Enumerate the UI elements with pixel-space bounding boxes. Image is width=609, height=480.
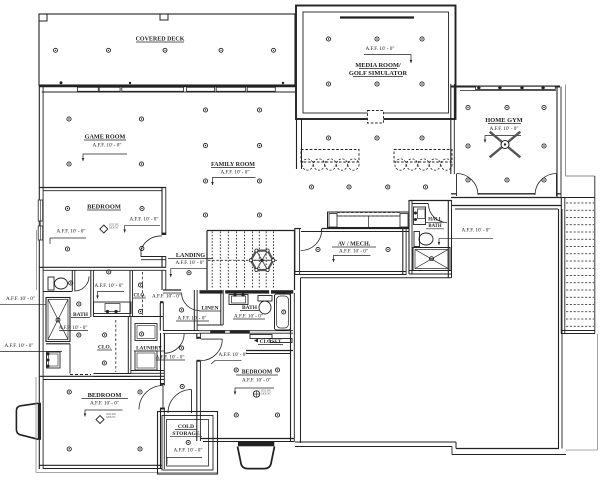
- svg-text:BEDROOM: BEDROOM: [87, 204, 121, 211]
- svg-text:BATH: BATH: [242, 305, 258, 311]
- svg-text:A.F.F. 10' - 0": A.F.F. 10' - 0": [489, 126, 518, 132]
- svg-text:GOLF SIMULATOR: GOLF SIMULATOR: [349, 70, 408, 77]
- svg-text:A.F.F. 10' - 0": A.F.F. 10' - 0": [152, 294, 181, 300]
- svg-text:BATH: BATH: [73, 312, 89, 318]
- svg-text:A.F.F. 10' - 0": A.F.F. 10' - 0": [94, 283, 123, 289]
- svg-text:CLO.: CLO.: [98, 345, 112, 351]
- svg-text:A.F.F. 10' - 0": A.F.F. 10' - 0": [6, 296, 35, 302]
- svg-text:A.F.F. 10' - 0": A.F.F. 10' - 0": [92, 143, 121, 149]
- svg-text:MOUNT: MOUNT: [109, 227, 119, 230]
- svg-text:A.F.F. 10' - 0": A.F.F. 10' - 0": [129, 217, 158, 223]
- svg-text:BEDROOM: BEDROOM: [88, 392, 122, 399]
- svg-text:A.F.F. 10' - 0": A.F.F. 10' - 0": [242, 378, 271, 384]
- svg-text:GAME ROOM: GAME ROOM: [85, 134, 126, 141]
- svg-text:A.F.F. 10' - 0": A.F.F. 10' - 0": [4, 343, 33, 349]
- svg-text:A.F.F. 10' - 0": A.F.F. 10' - 0": [218, 352, 247, 358]
- svg-text:LANDING: LANDING: [176, 252, 205, 259]
- svg-text:LAUNDRY: LAUNDRY: [136, 346, 162, 352]
- svg-text:MOUNT: MOUNT: [261, 393, 271, 396]
- svg-text:A.F.F. 10' - 0": A.F.F. 10' - 0": [461, 228, 490, 234]
- svg-text:A.F.F. 10' - 0": A.F.F. 10' - 0": [177, 316, 206, 322]
- svg-text:MOUNT: MOUNT: [106, 416, 116, 419]
- svg-text:STORAGE: STORAGE: [172, 431, 200, 437]
- svg-text:A.F.F. 10' - 0": A.F.F. 10' - 0": [220, 170, 249, 176]
- svg-text:A.F.F. 10' - 0": A.F.F. 10' - 0": [90, 401, 119, 407]
- svg-text:A.F.F. 10' - 0": A.F.F. 10' - 0": [234, 314, 263, 320]
- svg-text:HOME GYM: HOME GYM: [485, 117, 522, 124]
- svg-text:A.F.F. 10' - 0": A.F.F. 10' - 0": [175, 260, 204, 266]
- svg-text:MEDIA ROOM/: MEDIA ROOM/: [355, 62, 401, 69]
- svg-text:A.F.F. 10' - 0": A.F.F. 10' - 0": [173, 448, 202, 454]
- svg-text:CLOSET: CLOSET: [260, 339, 282, 345]
- svg-text:A.F.F. 10' - 0": A.F.F. 10' - 0": [155, 355, 184, 361]
- svg-text:A.F.F. 10' - 0": A.F.F. 10' - 0": [365, 46, 394, 52]
- svg-text:COLD: COLD: [178, 424, 194, 430]
- svg-text:A.F.F. 10' - 0": A.F.F. 10' - 0": [56, 229, 85, 235]
- svg-text:A.F.F. 10' - 0": A.F.F. 10' - 0": [339, 249, 368, 255]
- svg-text:A.F.F. 10' - 0": A.F.F. 10' - 0": [58, 325, 87, 331]
- svg-text:LINEN: LINEN: [201, 306, 218, 312]
